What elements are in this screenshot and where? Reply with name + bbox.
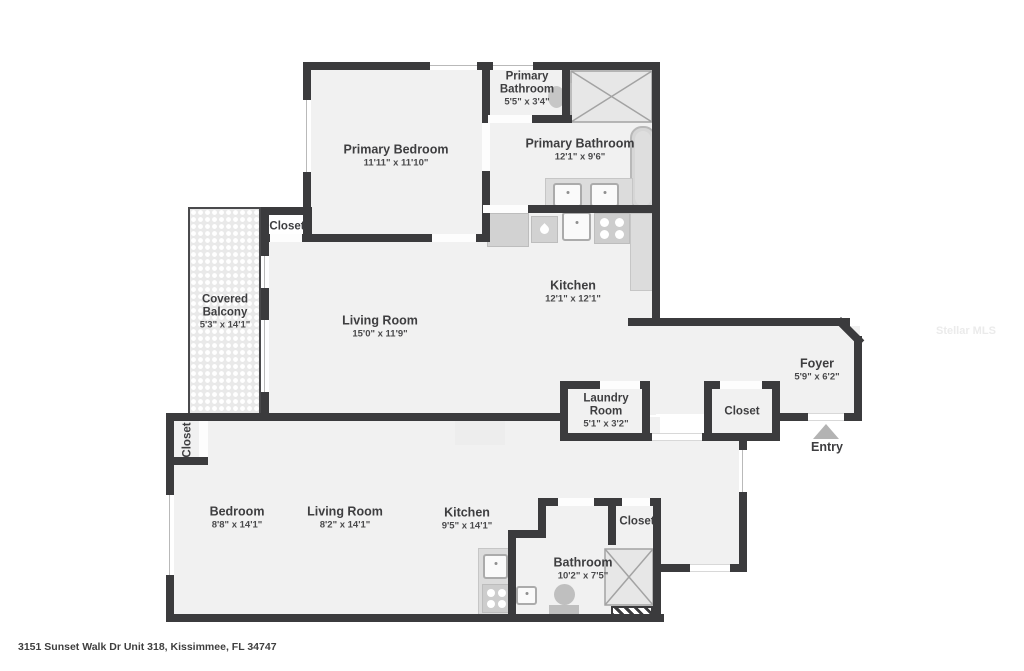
door-opening (652, 433, 702, 441)
window (166, 495, 174, 575)
property-address: 3151 Sunset Walk Dr Unit 318, Kissimmee,… (18, 641, 277, 653)
door-opening (270, 234, 302, 242)
floor-plan-canvas: Primary Bedroom 11'11" x 11'10" Primary … (0, 0, 1024, 671)
stove-icon (482, 584, 510, 613)
door-opening (600, 381, 640, 389)
window (430, 62, 477, 70)
room-label-covered-balcony: Covered Balcony 5'3" x 14'1" (200, 294, 251, 333)
door-opening (432, 234, 476, 242)
room-label-closet-hall: Closet (724, 405, 759, 418)
wall (166, 457, 208, 465)
entry-label: Entry (811, 439, 843, 455)
room-label-primary-bedroom: Primary Bedroom 11'11" x 11'10" (344, 142, 449, 171)
room-label-closet-upper: Closet (269, 220, 304, 233)
door-opening (690, 564, 730, 572)
sliding-door (261, 320, 269, 392)
sink-icon (483, 554, 508, 579)
door-opening (482, 123, 490, 171)
sink-icon (562, 212, 591, 241)
room-label-laundry-room: Laundry Room 5'1" x 3'2" (583, 393, 628, 432)
door-opening (488, 115, 532, 123)
kitchen-counter (630, 213, 654, 291)
wall (608, 498, 616, 545)
entry-arrow-icon (813, 424, 839, 439)
refrigerator-icon (487, 213, 529, 247)
wall (844, 413, 862, 421)
wall (562, 62, 570, 123)
wall (652, 62, 660, 326)
wall (704, 381, 712, 441)
wall (508, 530, 516, 622)
door-opening (622, 498, 650, 506)
room-label-kitchen-upper: Kitchen 12'1" x 12'1" (545, 278, 601, 307)
wall (854, 336, 862, 421)
wall (560, 381, 568, 441)
wall (166, 413, 568, 421)
watermark: Stellar MLS (936, 325, 996, 337)
sink-icon (516, 586, 537, 605)
shower-icon (570, 70, 653, 123)
room-label-bathroom-lower: Bathroom 10'2" x 7'5" (553, 555, 612, 584)
wall (772, 381, 780, 441)
wall (780, 413, 808, 421)
utility-patch (455, 418, 505, 445)
door-opening (720, 381, 762, 389)
room-label-closet-lower-left: Closet (181, 422, 194, 457)
sink-icon (553, 183, 582, 207)
window (303, 100, 311, 172)
floor-lower-right-ext (652, 441, 744, 568)
wall (560, 433, 650, 441)
window (493, 62, 533, 70)
room-label-living-room-lower: Living Room 8'2" x 14'1" (307, 504, 383, 533)
wall (642, 381, 650, 441)
wall (628, 318, 850, 326)
door-opening (558, 498, 594, 506)
door-opening (483, 205, 528, 213)
room-label-foyer: Foyer 5'9" x 6'2" (794, 356, 839, 385)
door-opening (199, 421, 208, 457)
room-label-living-room-upper: Living Room 15'0" x 11'9" (342, 313, 418, 342)
sink-icon (590, 183, 619, 207)
room-label-primary-bathroom: Primary Bathroom 12'1" x 9'6" (525, 136, 634, 165)
entry-door-opening (808, 413, 844, 421)
room-label-kitchen-lower: Kitchen 9'5" x 14'1" (442, 505, 493, 534)
toilet-icon (549, 584, 579, 617)
room-label-primary-bathroom-small: Primary Bathroom 5'5" x 3'4" (500, 71, 554, 110)
dishwasher-icon (531, 216, 558, 243)
room-label-bedroom-lower: Bedroom 8'8" x 14'1" (210, 504, 265, 533)
window (739, 450, 747, 492)
stove-icon (594, 213, 630, 244)
window (261, 256, 269, 288)
wall (166, 614, 664, 622)
room-label-closet-lower-right: Closet (619, 515, 654, 528)
